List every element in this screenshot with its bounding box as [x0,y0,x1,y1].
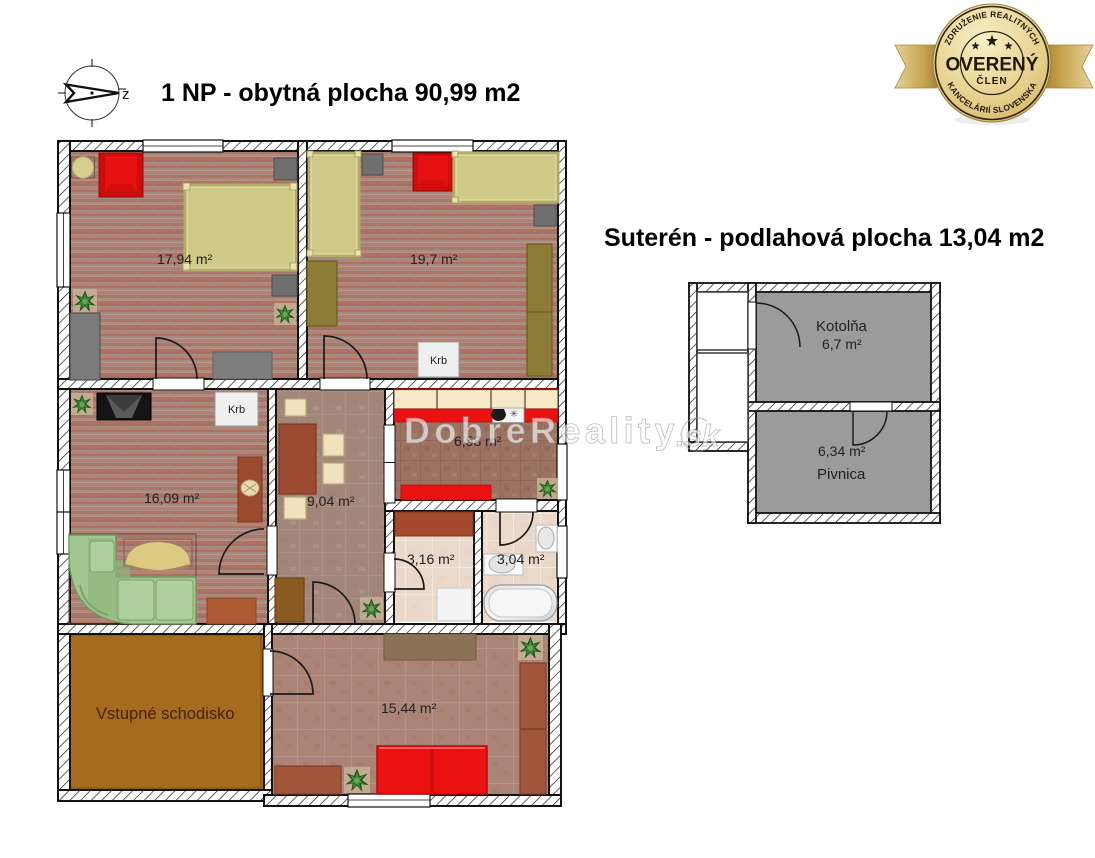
svg-text:Kotolňa: Kotolňa [816,318,868,335]
svg-text:Vstupné schodisko: Vstupné schodisko [96,705,235,723]
svg-text:6,7 m²: 6,7 m² [822,336,862,352]
svg-text:.sk: .sk [676,418,721,453]
svg-text:16,09 m²: 16,09 m² [144,490,200,506]
svg-text:9,04 m²: 9,04 m² [307,493,355,509]
svg-text:z: z [122,86,130,103]
svg-text:Krb: Krb [228,404,245,416]
svg-text:19,7 m²: 19,7 m² [410,251,458,267]
svg-text:OVERENÝ: OVERENÝ [946,54,1039,76]
svg-text:DobreReality: DobreReality [404,410,679,451]
svg-text:15,44 m²: 15,44 m² [381,700,437,716]
svg-text:17,94 m²: 17,94 m² [157,251,213,267]
svg-text:Krb: Krb [430,355,447,367]
svg-text:Suterén - podlahová plocha 13,: Suterén - podlahová plocha 13,04 m2 [604,224,1044,252]
svg-text:1 NP - obytná plocha 90,99 m2: 1 NP - obytná plocha 90,99 m2 [161,79,520,107]
svg-text:3,04 m²: 3,04 m² [497,551,545,567]
svg-text:3,16 m²: 3,16 m² [407,551,455,567]
svg-text:ČLEN: ČLEN [976,74,1007,87]
svg-text:Pivnica: Pivnica [817,466,866,483]
svg-text:6,34 m²: 6,34 m² [818,443,866,459]
